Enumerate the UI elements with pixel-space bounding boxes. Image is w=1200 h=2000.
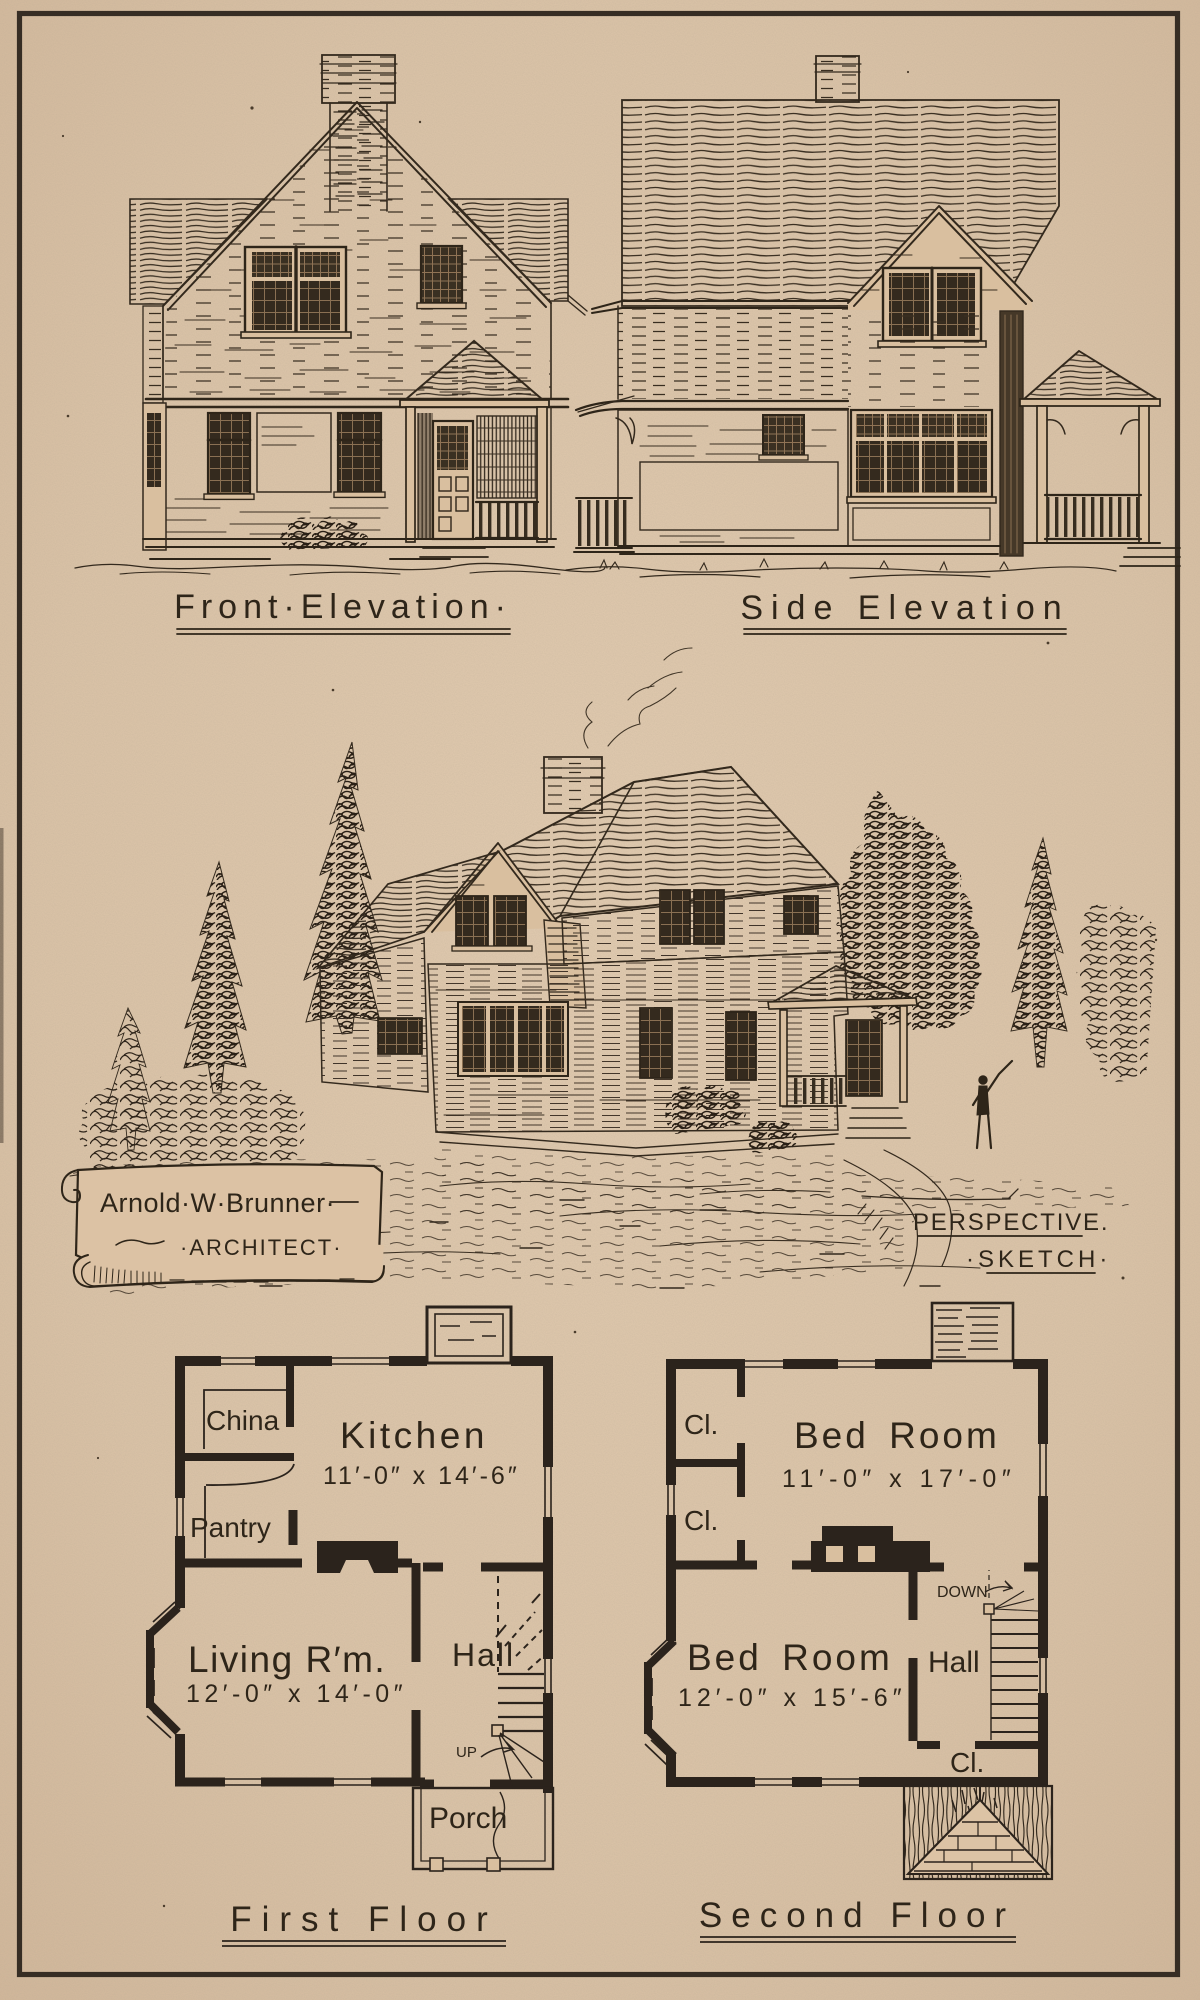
svg-text:Living R′m.: Living R′m.	[188, 1639, 386, 1680]
svg-text:Porch: Porch	[429, 1802, 507, 1835]
svg-text:Front·Elevation·: Front·Elevation·	[174, 588, 512, 626]
svg-text:Cl.: Cl.	[684, 1505, 718, 1536]
svg-text:12′-0″ x 15′-6″: 12′-0″ x 15′-6″	[678, 1684, 907, 1712]
svg-text:Hall: Hall	[928, 1646, 980, 1679]
svg-text:·SKETCH·: ·SKETCH·	[966, 1246, 1111, 1273]
svg-text:Pantry: Pantry	[190, 1512, 271, 1543]
svg-text:Side Elevation: Side Elevation	[740, 589, 1069, 627]
svg-text:Bed Room: Bed Room	[794, 1415, 1000, 1456]
svg-text:Arnold·W·Brunner·: Arnold·W·Brunner·	[100, 1188, 335, 1218]
svg-text:Kitchen: Kitchen	[340, 1415, 488, 1456]
svg-text:·ARCHITECT·: ·ARCHITECT·	[180, 1235, 343, 1260]
svg-text:Second Floor: Second Floor	[699, 1896, 1015, 1935]
svg-text:UP: UP	[456, 1744, 477, 1761]
svg-text:First Floor: First Floor	[230, 1900, 498, 1939]
svg-text:DOWN: DOWN	[937, 1584, 988, 1601]
svg-text:Bed Room: Bed Room	[687, 1637, 893, 1678]
svg-text:Cl.: Cl.	[950, 1747, 984, 1778]
svg-text:11′-0″ x 14′-6″: 11′-0″ x 14′-6″	[323, 1462, 520, 1490]
svg-text:12′-0″ x 14′-0″: 12′-0″ x 14′-0″	[186, 1680, 407, 1708]
svg-text:Cl.: Cl.	[684, 1409, 718, 1440]
svg-text:China: China	[206, 1405, 280, 1436]
svg-text:PERSPECTIVE.: PERSPECTIVE.	[913, 1209, 1109, 1236]
svg-text:Hall: Hall	[452, 1637, 515, 1673]
svg-text:11′-0″ x 17′-0″: 11′-0″ x 17′-0″	[782, 1465, 1016, 1493]
